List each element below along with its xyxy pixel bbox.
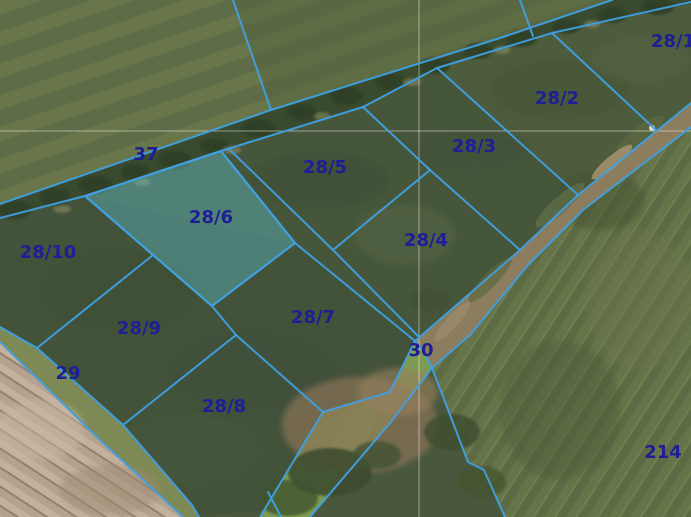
map-canvas[interactable]: 28/128/228/328/428/528/628/728/828/928/1… [0,0,691,517]
selected-parcel-28-6[interactable] [85,151,295,306]
parcel-boundary-lines [0,0,691,517]
cadastral-overlay [0,0,691,517]
